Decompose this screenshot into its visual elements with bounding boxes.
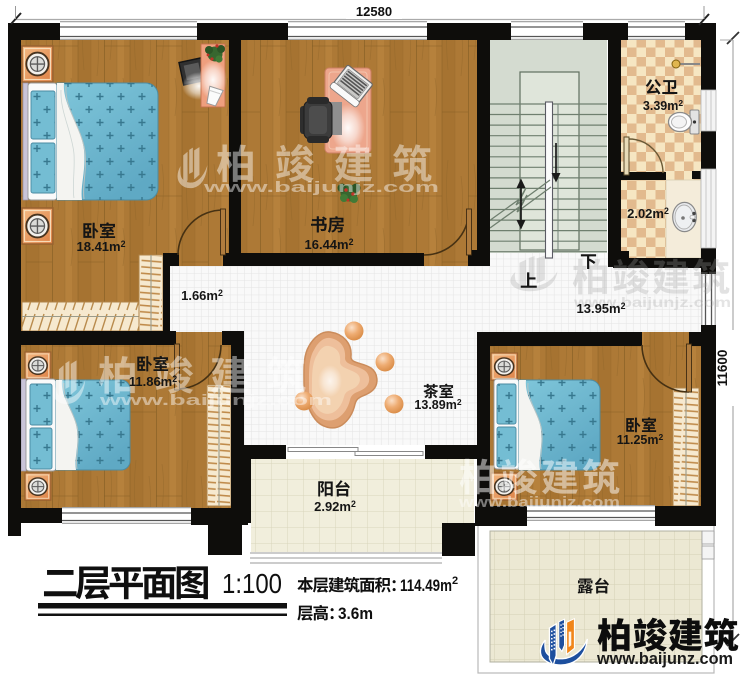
svg-text:3.6m: 3.6m [338, 604, 373, 623]
svg-text:18.41m2: 18.41m2 [77, 239, 126, 254]
svg-text:1:100: 1:100 [222, 568, 282, 599]
svg-text:2.02m2: 2.02m2 [627, 206, 669, 221]
svg-text:11.25m2: 11.25m2 [617, 432, 664, 447]
svg-text:1.66m2: 1.66m2 [181, 288, 223, 303]
svg-text:2.92m2: 2.92m2 [314, 499, 356, 514]
svg-text:www.baijunz.com: www.baijunz.com [596, 650, 733, 668]
svg-text:16.44m2: 16.44m2 [305, 237, 354, 252]
svg-text:13.95m2: 13.95m2 [577, 301, 626, 316]
svg-text:3.39m2: 3.39m2 [643, 98, 683, 113]
svg-text:114.49m: 114.49m [400, 576, 452, 595]
svg-text:www.baijunjz.com: www.baijunjz.com [98, 393, 332, 409]
svg-text:2: 2 [452, 575, 458, 587]
svg-text:12580: 12580 [356, 4, 392, 19]
svg-text:www.baijunjz.com: www.baijunjz.com [458, 495, 620, 511]
svg-text:www.baijunjz.com: www.baijunjz.com [202, 180, 439, 196]
svg-text:13.89m2: 13.89m2 [414, 397, 461, 412]
svg-text:11.86m2: 11.86m2 [129, 374, 177, 389]
svg-text:11600: 11600 [715, 350, 730, 387]
